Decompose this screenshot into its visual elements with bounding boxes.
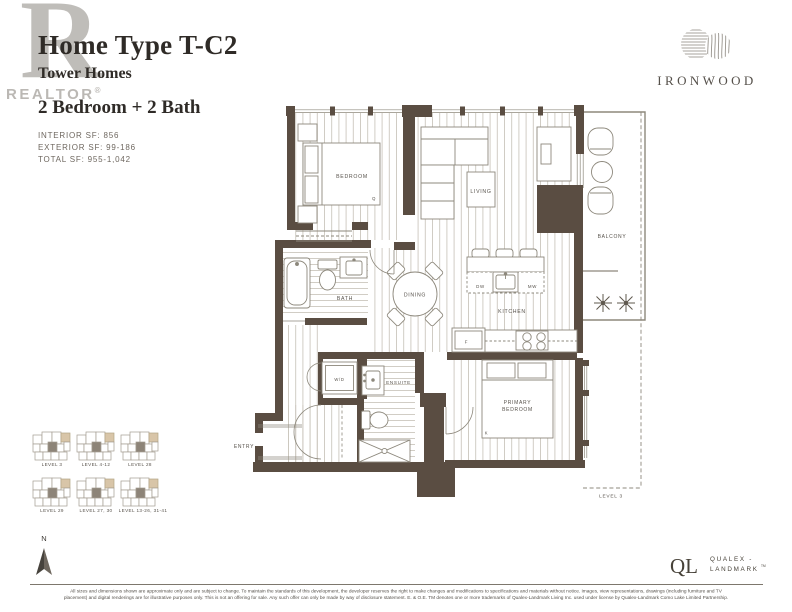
level-keyplans: LEVEL 3 LEVEL 4-12 LEVEL 28 LEVEL 29 LEV…	[28, 427, 208, 519]
floorplan-sheet: R REALTOR® Home Type T-C2 Tower Homes 2 …	[0, 0, 792, 612]
entry-label: ENTRY	[234, 444, 254, 450]
dishwasher-label: DW	[476, 284, 485, 289]
dining-label: DINING	[404, 293, 426, 299]
ensuite-label: ENSUITE	[386, 380, 411, 385]
cooktop	[516, 331, 548, 350]
bedroom-bath-config: 2 Bedroom + 2 Bath	[38, 97, 238, 119]
keyplan-label: LEVEL 27, 30	[80, 508, 113, 513]
microwave-label: MW	[528, 284, 537, 289]
keyplan-label: LEVEL 3	[42, 462, 63, 467]
ironwood-logo: IRONWOOD	[652, 24, 762, 89]
fridge	[452, 328, 485, 352]
balcony-chair	[588, 128, 613, 155]
trademark-mark: TM	[761, 564, 766, 568]
ensuite-toilet	[362, 411, 389, 429]
legal-disclaimer: All sizes and dimensions shown are appro…	[16, 588, 776, 601]
plant-icon	[594, 294, 612, 312]
developer-name-line1: QUALEX -	[710, 556, 753, 563]
keyplan-label: LEVEL 4-12	[82, 462, 111, 467]
ironwood-logo-mark	[652, 24, 762, 66]
keyplan-level-29	[33, 478, 70, 506]
page-title: Home Type T-C2	[38, 30, 238, 61]
exterior-sf: EXTERIOR SF: 99-186	[38, 143, 238, 152]
collection-subtitle: Tower Homes	[38, 65, 238, 83]
nightstand	[298, 206, 317, 223]
queen-bed-label: Q	[372, 196, 376, 201]
balcony-chair	[588, 187, 613, 214]
media-console	[537, 127, 571, 181]
keyplan-level-28	[121, 432, 158, 460]
primary-bedroom-label-line1: PRIMARY	[504, 400, 532, 406]
keyplan-label: LEVEL 28	[128, 462, 152, 467]
total-sf: TOTAL SF: 955-1,042	[38, 155, 238, 164]
bathtub	[284, 258, 310, 308]
brand-name: IRONWOOD	[652, 73, 762, 89]
floor-plan: BEDROOM Q LIVING BALCONY BATH DINING DW …	[225, 95, 675, 510]
keyplan-level-3	[33, 432, 70, 460]
shower	[359, 440, 410, 462]
developer-name-line2: LANDMARK	[710, 566, 759, 573]
kitchen-label: KITCHEN	[498, 309, 526, 315]
bath-sink	[340, 257, 367, 278]
king-bed	[482, 360, 553, 438]
living-label: LIVING	[470, 189, 491, 195]
king-bed-label: K	[485, 431, 489, 436]
keyplan-label: LEVEL 13-26, 31-41	[119, 508, 168, 513]
plant-icon	[617, 294, 635, 312]
interior-sf: INTERIOR SF: 856	[38, 131, 238, 140]
feature-wall-block	[537, 185, 583, 233]
balcony-sliding-door	[577, 154, 583, 188]
level3-terrace-label: LEVEL 3	[599, 494, 623, 500]
keyplan-label: LEVEL 29	[40, 508, 64, 513]
balcony-label: BALCONY	[598, 234, 627, 240]
qualex-landmark-logo: QL QUALEX - LANDMARK TM	[660, 548, 770, 580]
nightstand	[298, 124, 317, 141]
ensuite-vanity	[362, 366, 384, 395]
primary-bedroom-label-line2: BEDROOM	[502, 407, 533, 413]
footer-divider	[30, 584, 763, 585]
north-label: N	[41, 534, 46, 543]
keyplan-level-4-12	[77, 432, 114, 460]
compass-arrow-icon	[36, 548, 44, 575]
toilet	[318, 260, 337, 290]
disclaimer-line2: placement) and digital renderings are fo…	[16, 595, 776, 602]
bath-label: BATH	[337, 296, 353, 302]
bedroom-label: BEDROOM	[336, 174, 368, 180]
keyplan-level-13-26-31-41	[121, 478, 158, 506]
fridge-label: F	[465, 340, 468, 345]
keyplan-level-27-30	[77, 478, 114, 506]
ql-monogram: QL	[670, 554, 698, 578]
washer-dryer-label: W/D	[334, 377, 344, 382]
balcony-table	[592, 162, 613, 183]
north-arrow: N	[30, 528, 58, 578]
plan-header: Home Type T-C2 Tower Homes 2 Bedroom + 2…	[38, 30, 238, 164]
